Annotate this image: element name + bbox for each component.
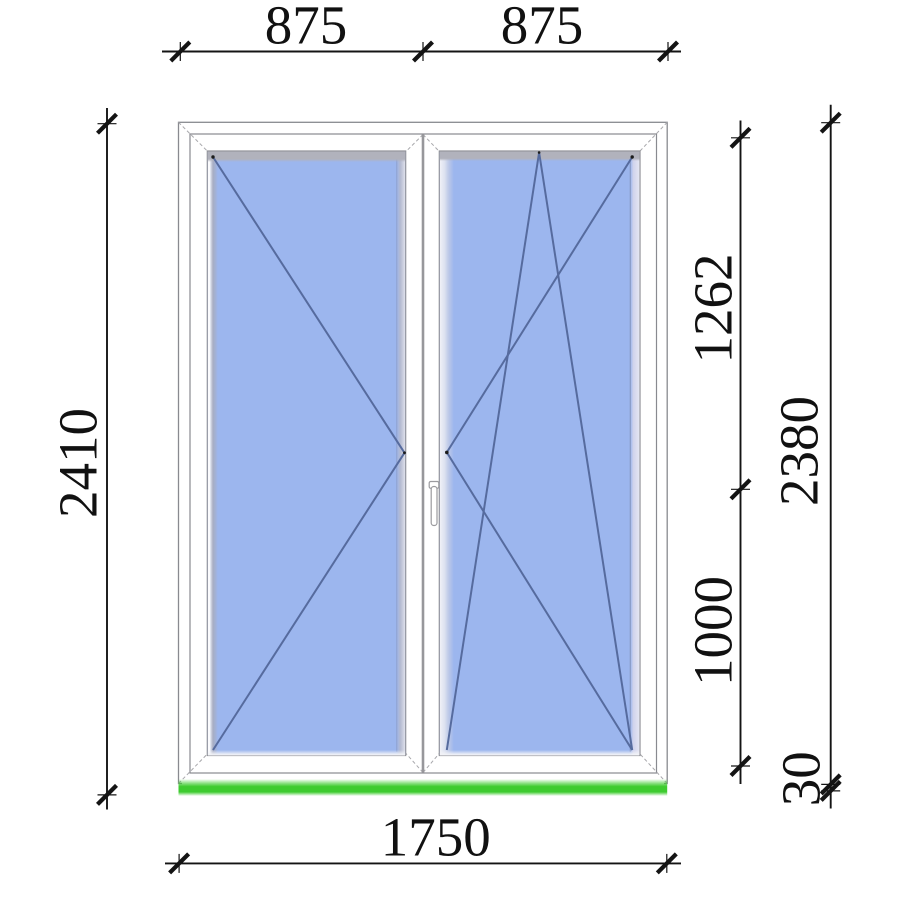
svg-text:2410: 2410 — [48, 408, 109, 518]
svg-text:1262: 1262 — [683, 254, 744, 364]
svg-text:875: 875 — [501, 0, 584, 56]
svg-text:30: 30 — [770, 751, 831, 806]
svg-text:2380: 2380 — [768, 396, 829, 506]
svg-text:1750: 1750 — [381, 807, 491, 868]
svg-text:1000: 1000 — [683, 576, 744, 686]
svg-text:875: 875 — [265, 0, 348, 56]
